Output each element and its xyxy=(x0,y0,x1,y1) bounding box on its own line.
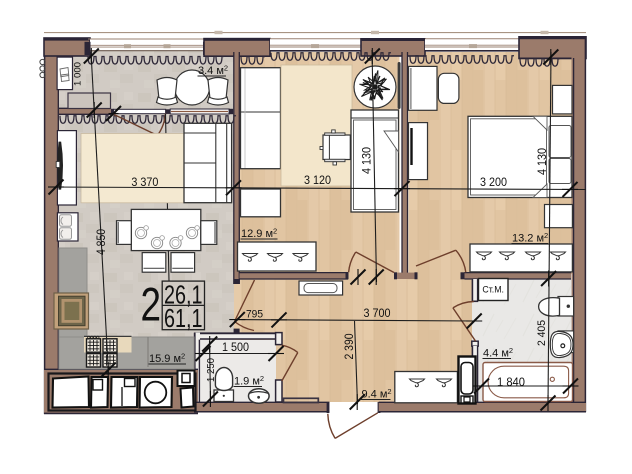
svg-text:1.9 м2: 1.9 м2 xyxy=(234,374,264,388)
svg-text:Ст.М.: Ст.М. xyxy=(482,285,504,295)
svg-text:12.9 м2: 12.9 м2 xyxy=(241,227,277,241)
svg-text:3 200: 3 200 xyxy=(480,177,507,189)
svg-text:4 130: 4 130 xyxy=(537,148,549,175)
svg-text:3.4 м2: 3.4 м2 xyxy=(198,64,228,78)
svg-text:1 250: 1 250 xyxy=(206,358,217,382)
svg-text:2 405: 2 405 xyxy=(536,320,548,346)
svg-text:1 000: 1 000 xyxy=(73,62,84,86)
svg-text:13.2 м2: 13.2 м2 xyxy=(512,231,548,245)
svg-text:4.4 м2: 4.4 м2 xyxy=(483,346,513,360)
svg-text:2 390: 2 390 xyxy=(344,334,356,360)
svg-text:1 500: 1 500 xyxy=(222,342,249,354)
svg-text:4 130: 4 130 xyxy=(362,147,374,174)
svg-text:3 120: 3 120 xyxy=(304,175,331,187)
svg-text:15.9 м2: 15.9 м2 xyxy=(149,352,185,366)
svg-text:9.4 м2: 9.4 м2 xyxy=(362,387,392,401)
svg-text:61,1: 61,1 xyxy=(164,303,203,333)
svg-text:1 840: 1 840 xyxy=(497,375,525,389)
svg-text:3 700: 3 700 xyxy=(364,308,391,320)
svg-text:795: 795 xyxy=(246,309,263,321)
svg-text:4 850: 4 850 xyxy=(96,229,108,255)
svg-text:2: 2 xyxy=(141,277,162,330)
svg-text:3 370: 3 370 xyxy=(131,177,158,189)
